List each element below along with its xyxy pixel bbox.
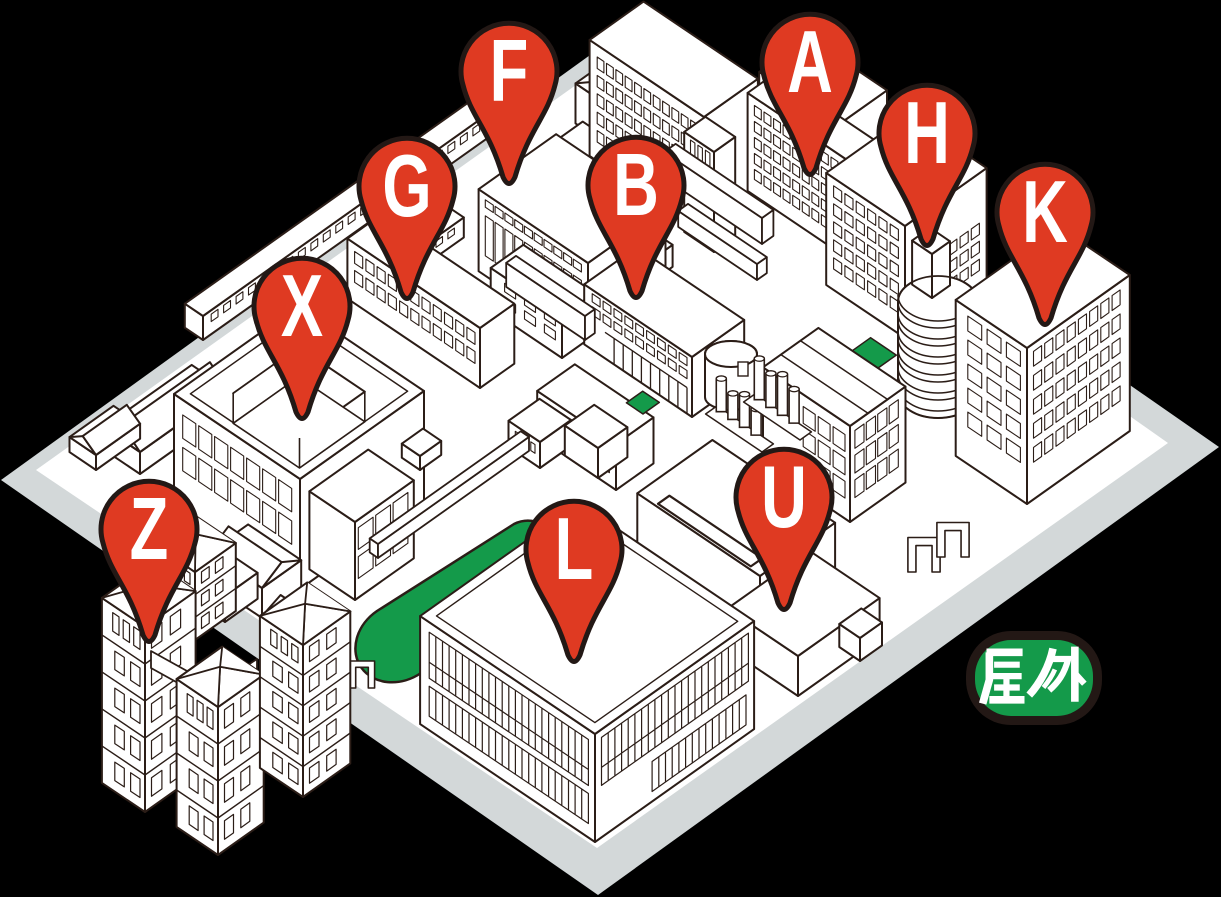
svg-text:B: B [613,137,659,235]
svg-text:L: L [555,501,594,599]
svg-text:A: A [787,14,833,112]
svg-text:U: U [761,449,807,547]
svg-text:Z: Z [130,481,169,579]
svg-text:K: K [1022,164,1068,262]
svg-text:F: F [490,23,529,121]
svg-text:X: X [281,258,323,356]
svg-text:H: H [904,85,950,183]
svg-text:G: G [382,138,431,236]
